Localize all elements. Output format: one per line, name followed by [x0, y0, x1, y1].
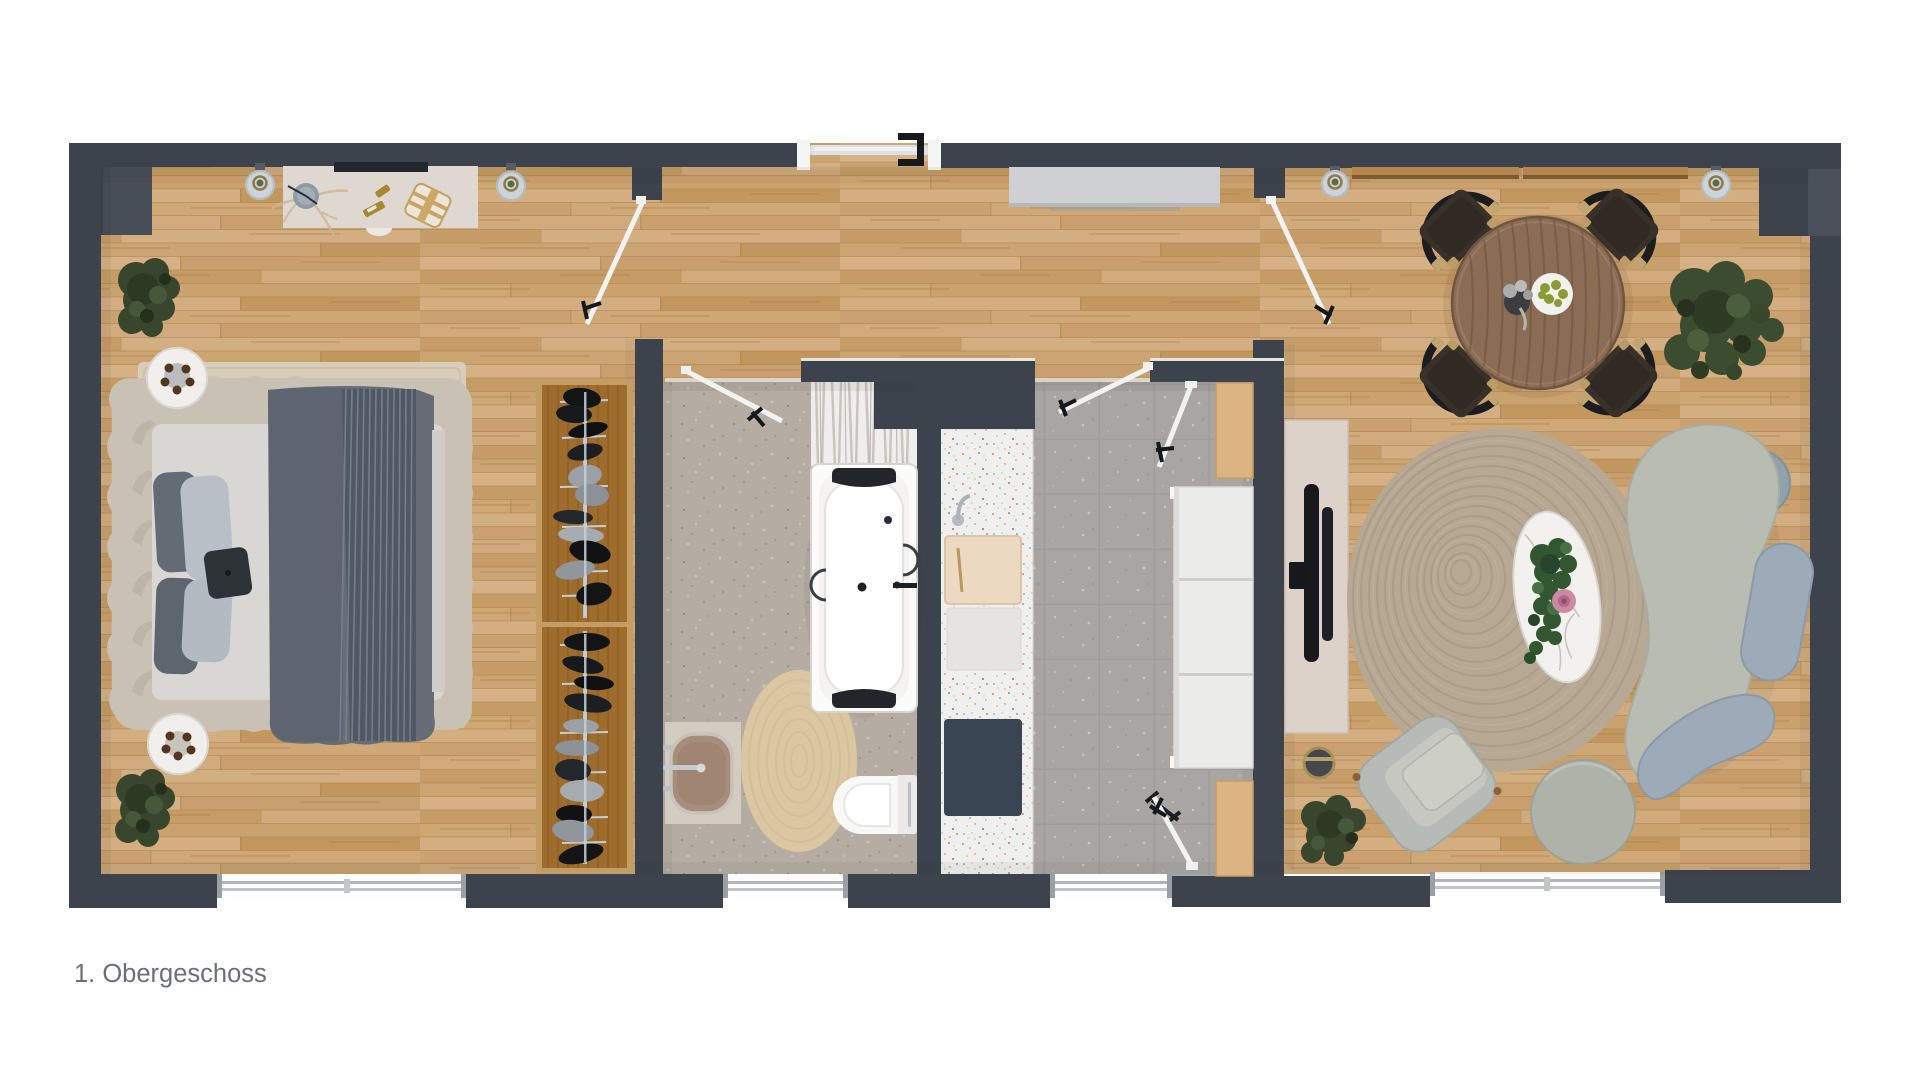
svg-text:1. Obergeschoss: 1. Obergeschoss: [74, 960, 267, 988]
